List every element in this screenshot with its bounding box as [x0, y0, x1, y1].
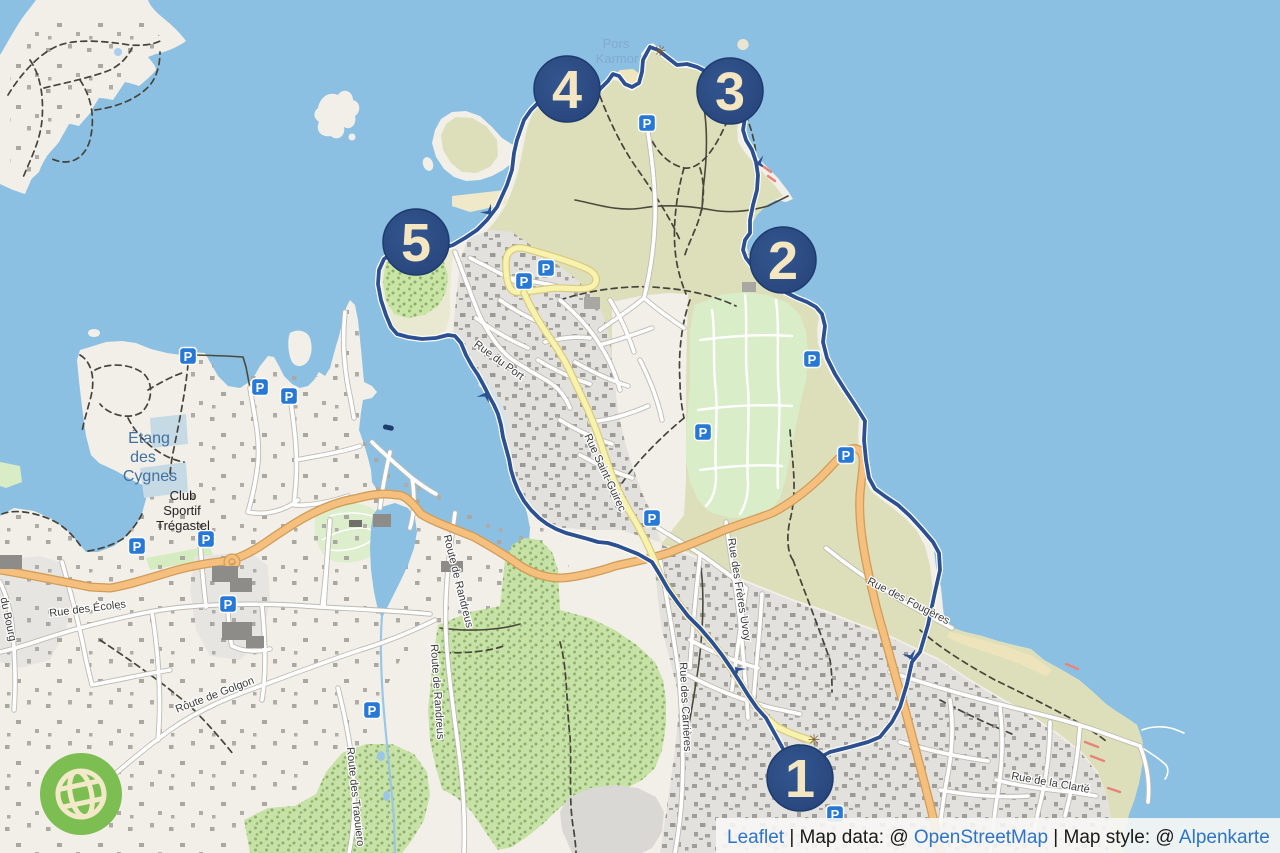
svg-text:des: des — [130, 449, 156, 466]
svg-text:P: P — [368, 703, 377, 718]
svg-text:Étang: Étang — [128, 428, 170, 447]
svg-text:P: P — [184, 349, 193, 364]
svg-text:3: 3 — [715, 62, 745, 122]
svg-text:2: 2 — [768, 231, 798, 291]
svg-text:P: P — [285, 389, 294, 404]
svg-text:Trégastel: Trégastel — [156, 518, 210, 533]
svg-text:4: 4 — [552, 60, 582, 120]
svg-text:Karmor: Karmor — [596, 51, 639, 66]
svg-text:5: 5 — [401, 213, 431, 273]
svg-text:P: P — [133, 539, 142, 554]
svg-text:P: P — [648, 511, 657, 526]
svg-text:P: P — [224, 597, 233, 612]
svg-text:Leaflet | Map data: @ OpenStre: Leaflet | Map data: @ OpenStreetMap | Ma… — [727, 827, 1270, 848]
svg-text:Pors: Pors — [603, 36, 630, 51]
svg-text:P: P — [202, 532, 211, 547]
svg-text:Cygnes: Cygnes — [123, 468, 177, 485]
svg-text:1: 1 — [785, 749, 815, 809]
svg-text:P: P — [842, 448, 851, 463]
svg-text:Sportif: Sportif — [163, 503, 201, 518]
svg-text:P: P — [699, 425, 708, 440]
svg-text:P: P — [542, 261, 551, 276]
svg-text:P: P — [808, 352, 817, 367]
svg-text:P: P — [256, 380, 265, 395]
svg-text:P: P — [643, 116, 652, 131]
svg-text:Club: Club — [170, 488, 197, 503]
svg-text:P: P — [520, 274, 529, 289]
svg-text:✳: ✳ — [654, 43, 667, 60]
